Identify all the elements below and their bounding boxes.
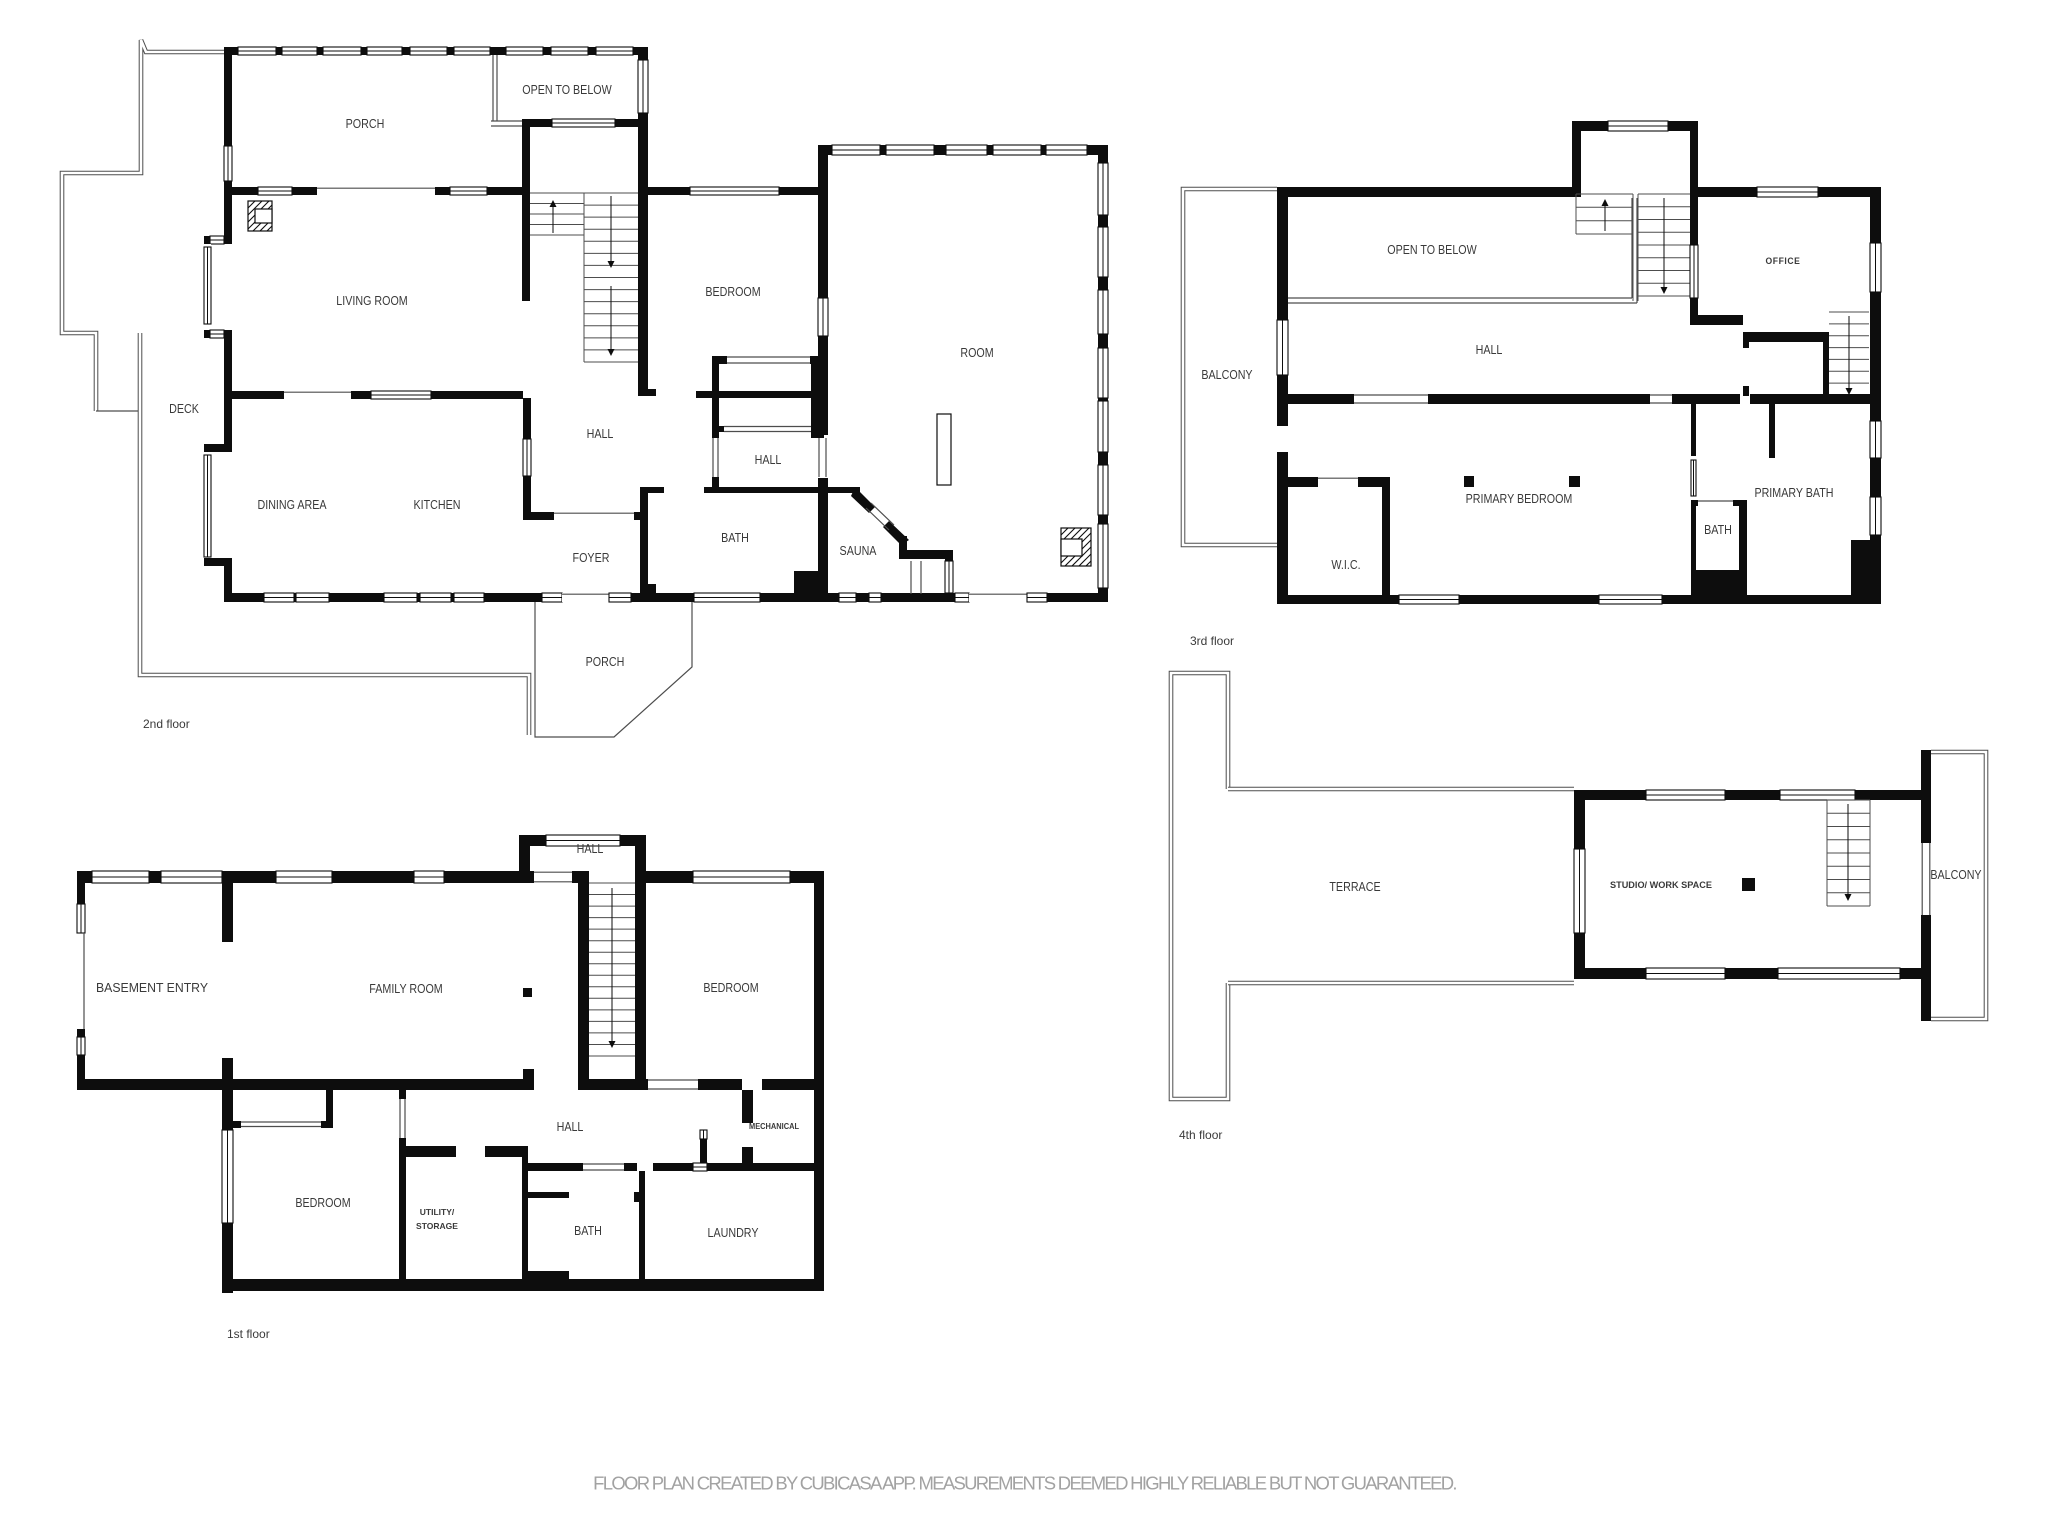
svg-text:3rd floor: 3rd floor [1190,634,1234,648]
svg-text:BEDROOM: BEDROOM [295,1196,350,1210]
svg-text:OPEN TO BELOW: OPEN TO BELOW [522,83,611,97]
svg-text:HALL: HALL [557,1120,584,1134]
svg-text:PRIMARY BATH: PRIMARY BATH [1754,486,1833,500]
svg-text:LAUNDRY: LAUNDRY [708,1226,759,1240]
svg-text:BALCONY: BALCONY [1201,368,1253,382]
svg-text:HALL: HALL [755,453,782,467]
svg-text:4th floor: 4th floor [1179,1128,1222,1142]
svg-text:STUDIO/ WORK SPACE: STUDIO/ WORK SPACE [1610,880,1712,890]
svg-text:PORCH: PORCH [346,117,385,131]
svg-text:PORCH: PORCH [586,655,625,669]
svg-text:DINING AREA: DINING AREA [258,498,328,512]
svg-text:KITCHEN: KITCHEN [414,498,461,512]
svg-text:HALL: HALL [587,427,614,441]
svg-text:DECK: DECK [169,402,199,416]
svg-text:HALL: HALL [1476,343,1503,357]
svg-text:BATH: BATH [574,1224,602,1238]
svg-text:ROOM: ROOM [960,346,993,360]
svg-text:FAMILY ROOM: FAMILY ROOM [369,982,442,996]
svg-text:BEDROOM: BEDROOM [703,981,758,995]
svg-text:BATH: BATH [1704,523,1732,537]
svg-text:2nd floor: 2nd floor [143,717,190,731]
svg-text:OFFICE: OFFICE [1766,256,1801,266]
svg-text:LIVING ROOM: LIVING ROOM [336,294,407,308]
svg-text:FOYER: FOYER [573,551,610,565]
svg-text:OPEN TO BELOW: OPEN TO BELOW [1387,243,1476,257]
svg-text:HALL: HALL [577,842,604,856]
svg-text:BEDROOM: BEDROOM [705,285,760,299]
svg-text:BATH: BATH [721,531,749,545]
svg-text:SAUNA: SAUNA [840,544,877,558]
svg-text:FLOOR PLAN CREATED BY CUBICASA: FLOOR PLAN CREATED BY CUBICASA APP. MEAS… [593,1473,1456,1494]
svg-text:UTILITY/: UTILITY/ [420,1207,455,1217]
svg-text:1st floor: 1st floor [227,1327,270,1341]
svg-text:W.I.C.: W.I.C. [1331,558,1360,572]
svg-text:MECHANICAL: MECHANICAL [749,1122,799,1131]
svg-text:BALCONY: BALCONY [1930,868,1982,882]
svg-text:BASEMENT ENTRY: BASEMENT ENTRY [96,980,208,995]
svg-text:PRIMARY BEDROOM: PRIMARY BEDROOM [1466,492,1573,506]
svg-text:STORAGE: STORAGE [416,1221,458,1231]
svg-text:TERRACE: TERRACE [1329,880,1380,894]
